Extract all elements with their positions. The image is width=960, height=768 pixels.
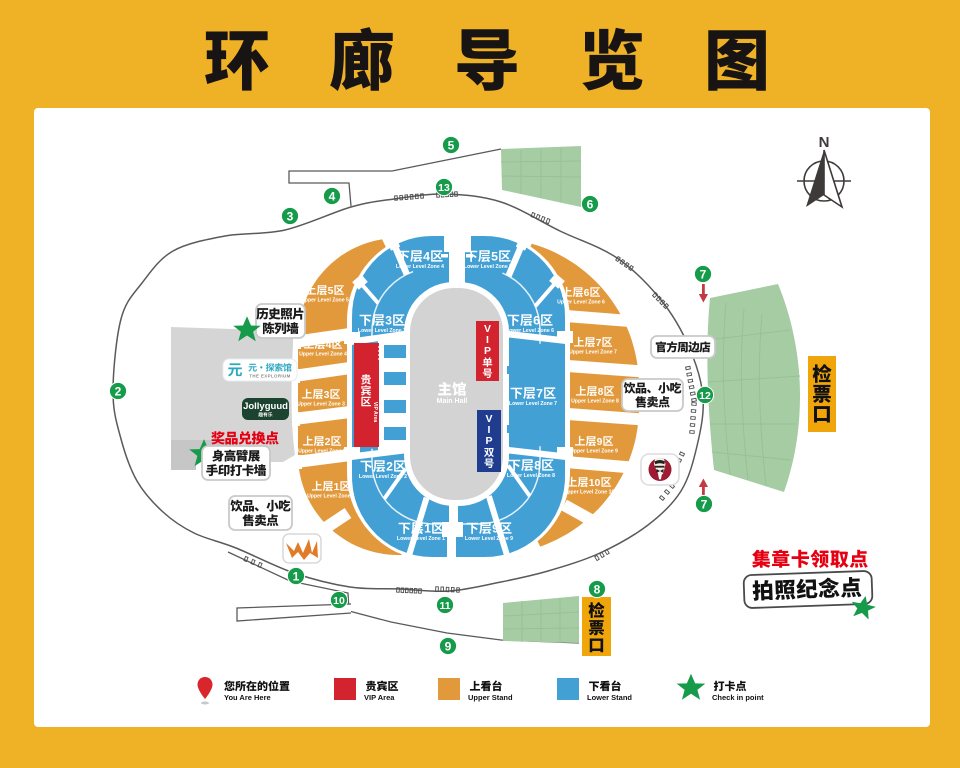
svg-text:Lower Level Zone 1: Lower Level Zone 1 [397, 536, 445, 542]
svg-text:Upper Stand: Upper Stand [468, 693, 513, 702]
svg-text:P: P [484, 345, 491, 357]
svg-text:Upper Level Zone 9: Upper Level Zone 9 [570, 448, 618, 454]
svg-text:Lower Level Zone 5: Lower Level Zone 5 [464, 264, 512, 270]
svg-text:4: 4 [329, 189, 336, 203]
svg-text:Upper Level Zone 8: Upper Level Zone 8 [571, 398, 619, 404]
svg-text:THE EXPLORIUM: THE EXPLORIUM [249, 374, 290, 379]
svg-text:6: 6 [584, 288, 590, 299]
svg-text:Jollyguud: Jollyguud [243, 401, 288, 412]
svg-text:8: 8 [598, 387, 604, 398]
svg-text:1: 1 [424, 522, 431, 536]
svg-text:Upper Level Zone 6: Upper Level Zone 6 [557, 299, 605, 305]
svg-text:1: 1 [293, 569, 300, 583]
svg-text:4: 4 [423, 250, 430, 264]
svg-text:1: 1 [334, 482, 340, 493]
svg-text:2: 2 [386, 460, 393, 474]
svg-text:You Are Here: You Are Here [224, 693, 271, 702]
svg-text:Lower Level Zone 3: Lower Level Zone 3 [358, 328, 406, 334]
svg-text:Lower Level Zone 4: Lower Level Zone 4 [396, 264, 444, 270]
svg-text:2: 2 [115, 384, 122, 398]
svg-text:12: 12 [699, 390, 711, 402]
svg-text:11: 11 [439, 600, 450, 612]
svg-text:8: 8 [594, 582, 601, 596]
svg-text:2: 2 [325, 437, 331, 448]
svg-text:Check in point: Check in point [712, 693, 764, 702]
svg-text:Upper Level Zone 10: Upper Level Zone 10 [564, 489, 615, 495]
svg-text:10: 10 [333, 595, 345, 607]
svg-text:7: 7 [596, 338, 602, 349]
svg-text:Upper Level Zone 7: Upper Level Zone 7 [569, 349, 617, 355]
svg-text:3: 3 [385, 314, 392, 328]
svg-text:7: 7 [701, 497, 708, 511]
svg-text:6: 6 [533, 314, 540, 328]
svg-text:7: 7 [700, 267, 707, 281]
svg-text:6: 6 [587, 197, 594, 211]
svg-text:8: 8 [534, 459, 541, 473]
svg-text:5: 5 [328, 286, 334, 297]
svg-text:9: 9 [597, 437, 603, 448]
svg-text:5: 5 [491, 250, 498, 264]
svg-text:N: N [819, 134, 830, 151]
svg-text:7: 7 [536, 387, 543, 401]
svg-text:Upper Level Zone 3: Upper Level Zone 3 [297, 401, 345, 407]
svg-text:9: 9 [445, 639, 452, 653]
svg-text:13: 13 [438, 182, 450, 194]
svg-text:3: 3 [287, 209, 294, 223]
svg-text:Lower Level Zone 7: Lower Level Zone 7 [509, 401, 557, 407]
svg-text:VIP Area: VIP Area [372, 402, 378, 423]
svg-text:Lower Stand: Lower Stand [587, 693, 632, 702]
svg-text:Main Hall: Main Hall [437, 398, 468, 405]
svg-text:5: 5 [448, 138, 455, 152]
svg-text:Upper Level Zone 2: Upper Level Zone 2 [298, 448, 346, 454]
svg-text:Lower Level Zone 2: Lower Level Zone 2 [359, 474, 407, 480]
svg-text:VIP Area: VIP Area [364, 693, 395, 702]
svg-text:10: 10 [589, 478, 601, 489]
svg-text:Lower Level Zone 6: Lower Level Zone 6 [506, 328, 554, 334]
svg-text:Upper Level Zone 1: Upper Level Zone 1 [307, 493, 355, 499]
svg-text:Upper Level Zone 4: Upper Level Zone 4 [299, 351, 347, 357]
svg-text:Lower Level Zone 9: Lower Level Zone 9 [465, 536, 513, 542]
svg-text:Lower Level Zone 8: Lower Level Zone 8 [507, 473, 555, 479]
svg-text:3: 3 [324, 390, 330, 401]
svg-text:P: P [485, 435, 492, 447]
svg-text:Upper Level Zone 5: Upper Level Zone 5 [301, 297, 349, 303]
svg-text:9: 9 [492, 522, 499, 536]
svg-text:4: 4 [326, 340, 332, 351]
